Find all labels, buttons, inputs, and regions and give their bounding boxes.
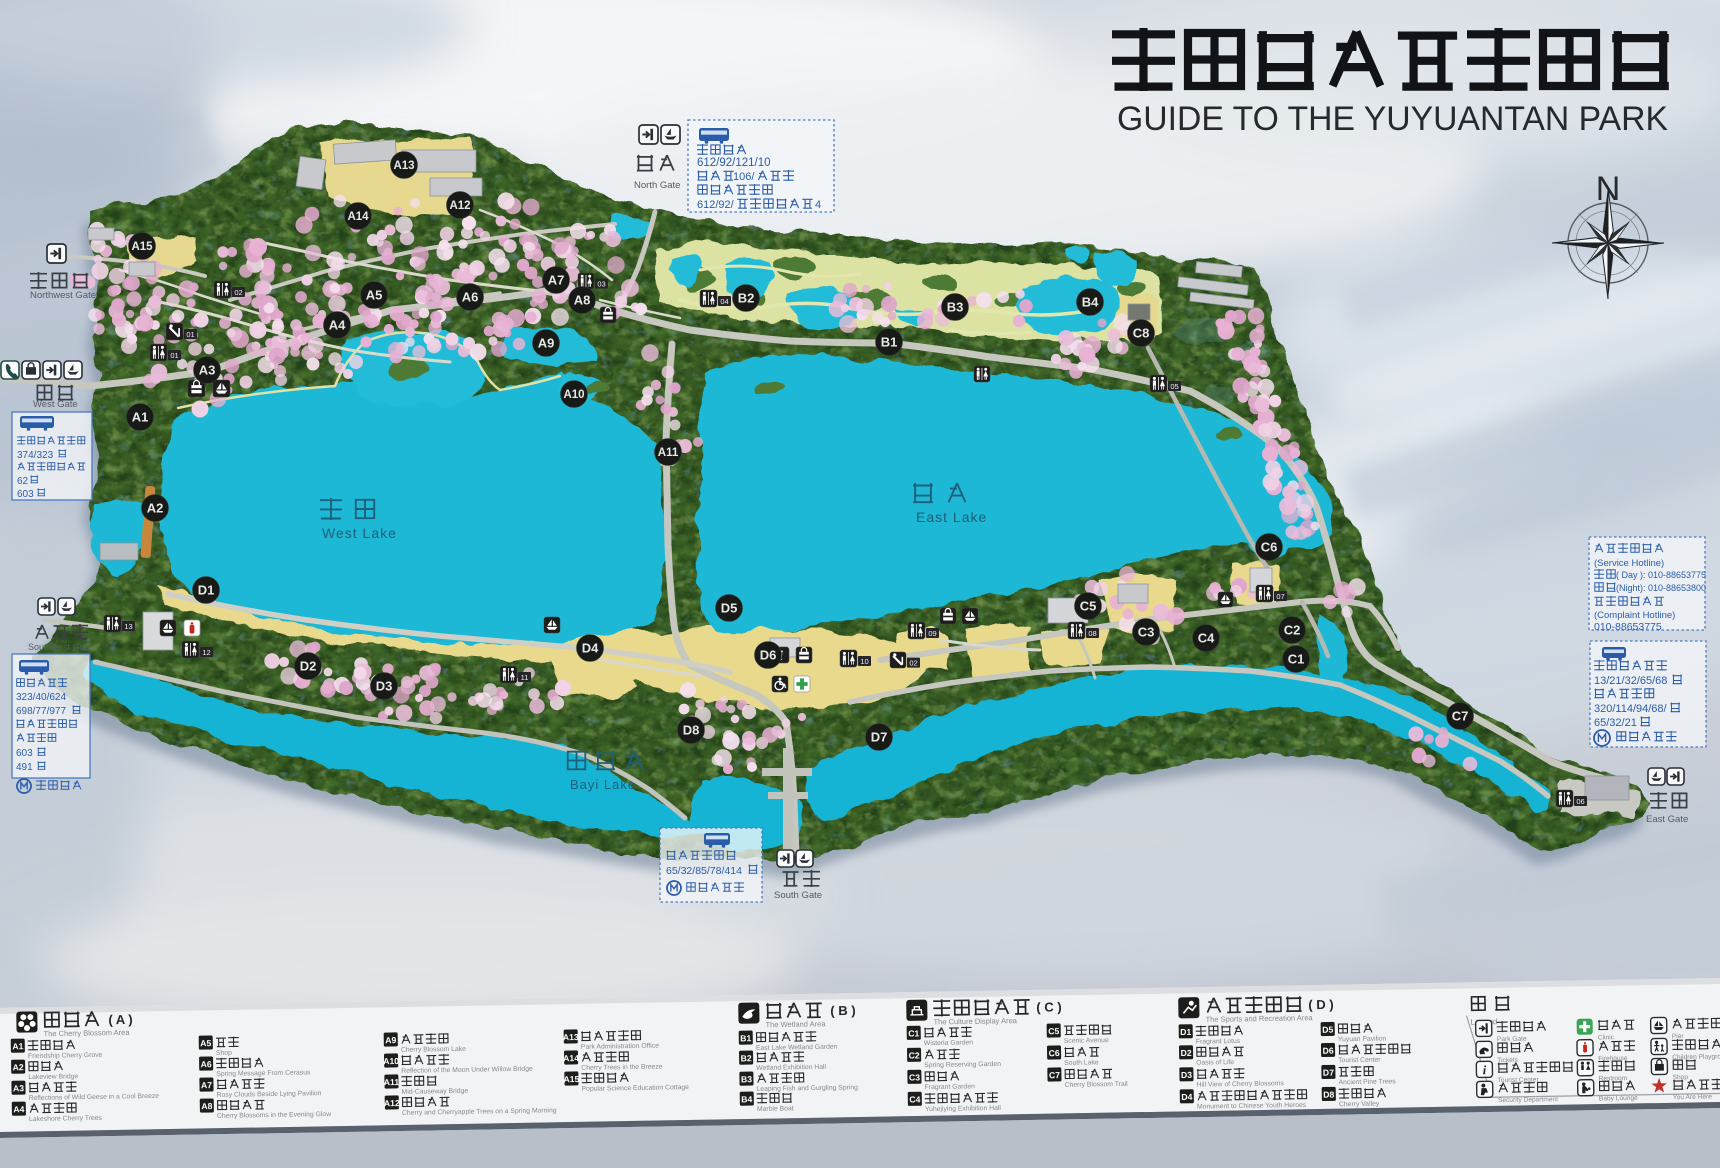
svg-text:491: 491 — [16, 762, 33, 773]
svg-text:Wetland Exhibition Hall: Wetland Exhibition Hall — [756, 1064, 826, 1072]
svg-text:( A ): ( A ) — [108, 1012, 133, 1027]
svg-text:603: 603 — [16, 748, 33, 759]
svg-text:The Culture Display Area: The Culture Display Area — [933, 1016, 1017, 1026]
svg-text:01: 01 — [170, 351, 178, 360]
svg-text:08: 08 — [1088, 629, 1096, 638]
svg-text:The Cherry Blossom Area: The Cherry Blossom Area — [44, 1028, 131, 1038]
svg-text:A13: A13 — [393, 160, 414, 172]
svg-text:65/32/85/78/414: 65/32/85/78/414 — [666, 865, 742, 877]
svg-text:Park Gate: Park Gate — [1497, 1036, 1527, 1043]
svg-text:A12: A12 — [384, 1098, 400, 1108]
svg-text:07: 07 — [1276, 592, 1284, 601]
svg-text:A1: A1 — [12, 1041, 23, 1051]
svg-text:B1: B1 — [740, 1033, 751, 1043]
svg-text:West Lake: West Lake — [322, 525, 397, 541]
svg-text:A15: A15 — [563, 1074, 579, 1084]
svg-text:B4: B4 — [1082, 295, 1099, 310]
svg-text:D5: D5 — [1322, 1025, 1333, 1035]
svg-text:A3: A3 — [199, 363, 216, 378]
svg-text:A6: A6 — [462, 290, 479, 305]
svg-text:Southwest Gate: Southwest Gate — [28, 642, 92, 652]
svg-text:603: 603 — [17, 489, 34, 500]
svg-text:D4: D4 — [582, 641, 599, 656]
svg-text:C2: C2 — [908, 1050, 919, 1060]
svg-text:D7: D7 — [871, 730, 888, 745]
svg-text:Marble Boat: Marble Boat — [757, 1105, 794, 1113]
svg-text:Pier: Pier — [1672, 1033, 1685, 1040]
svg-text:The Wetland Area: The Wetland Area — [765, 1019, 826, 1029]
svg-text:Bayi Lake: Bayi Lake — [570, 777, 636, 792]
svg-text:Friendship Cherry Grove: Friendship Cherry Grove — [28, 1052, 103, 1060]
svg-text:4: 4 — [815, 199, 821, 211]
svg-text:Baby Lounge: Baby Lounge — [1599, 1095, 1638, 1103]
svg-text:Park Administration Office: Park Administration Office — [581, 1043, 659, 1051]
svg-text:Lakeview Bridge: Lakeview Bridge — [28, 1073, 78, 1081]
svg-text:Cherry Trees in the Breeze: Cherry Trees in the Breeze — [581, 1064, 663, 1072]
svg-text:03: 03 — [597, 280, 605, 289]
svg-text:06: 06 — [1576, 797, 1584, 806]
svg-text:C3: C3 — [909, 1072, 920, 1082]
svg-text:Mid-Causeway Bridge: Mid-Causeway Bridge — [402, 1088, 469, 1096]
svg-text:D1: D1 — [1180, 1027, 1191, 1037]
svg-text:323/40/624: 323/40/624 — [16, 692, 66, 703]
svg-text:11: 11 — [521, 673, 529, 682]
svg-text:C7: C7 — [1452, 709, 1469, 724]
svg-text:02: 02 — [234, 288, 242, 297]
svg-text:Fragrant Garden: Fragrant Garden — [925, 1083, 976, 1091]
svg-text:A8: A8 — [574, 293, 591, 308]
svg-text:(Complaint Hotline): (Complaint Hotline) — [1594, 610, 1675, 621]
svg-text:D5: D5 — [721, 601, 738, 616]
svg-text:A9: A9 — [385, 1035, 396, 1045]
svg-text:A4: A4 — [13, 1104, 24, 1114]
svg-text:A7: A7 — [548, 273, 565, 288]
svg-text:106/: 106/ — [733, 171, 755, 183]
svg-text:Cherry Blossom Lake: Cherry Blossom Lake — [401, 1046, 466, 1054]
svg-text:A2: A2 — [13, 1062, 24, 1072]
svg-text:C6: C6 — [1261, 540, 1278, 555]
svg-text:( C ): ( C ) — [1036, 999, 1062, 1014]
svg-text:010-88653775: 010-88653775 — [1594, 621, 1662, 633]
svg-text:C5: C5 — [1048, 1026, 1059, 1036]
svg-text:Oasis of Life: Oasis of Life — [1196, 1059, 1234, 1067]
svg-text:A1: A1 — [132, 410, 149, 425]
svg-text:374/323: 374/323 — [17, 450, 54, 461]
svg-text:Northwest Gate: Northwest Gate — [30, 290, 96, 301]
svg-text:09: 09 — [928, 629, 936, 638]
svg-text:B2: B2 — [738, 291, 755, 306]
svg-text:A14: A14 — [563, 1053, 579, 1063]
svg-text:A14: A14 — [347, 211, 369, 223]
svg-text:A11: A11 — [658, 447, 679, 459]
svg-text:C2: C2 — [1284, 623, 1301, 638]
svg-text:A9: A9 — [538, 336, 555, 351]
svg-text:Tourist Center: Tourist Center — [1338, 1057, 1381, 1065]
svg-text:Hill View of Cherry Blossoms: Hill View of Cherry Blossoms — [1197, 1080, 1285, 1088]
svg-text:Wisteria Garden: Wisteria Garden — [924, 1039, 973, 1047]
svg-text:South Lake: South Lake — [1064, 1059, 1099, 1067]
svg-text:A8: A8 — [201, 1101, 212, 1111]
svg-text:C6: C6 — [1048, 1048, 1059, 1058]
svg-text:01: 01 — [186, 330, 194, 339]
svg-text:Yuyuan Pavilion: Yuyuan Pavilion — [1338, 1036, 1387, 1044]
svg-text:(Service Hotline): (Service Hotline) — [1594, 558, 1664, 569]
svg-text:A4: A4 — [329, 318, 346, 333]
svg-text:D8: D8 — [683, 723, 700, 738]
svg-text:A13: A13 — [563, 1032, 579, 1042]
svg-text:Shop: Shop — [216, 1050, 232, 1057]
svg-text:10: 10 — [860, 657, 868, 666]
svg-text:A10: A10 — [563, 389, 584, 401]
svg-text:B4: B4 — [741, 1094, 752, 1104]
svg-text:A10: A10 — [383, 1056, 399, 1066]
svg-text:Shop: Shop — [1673, 1074, 1689, 1081]
svg-text:(Night): 010-88653800: (Night): 010-88653800 — [1616, 583, 1706, 593]
svg-text:Yuhejiying Exhibition Hall: Yuhejiying Exhibition Hall — [925, 1105, 1002, 1113]
svg-text:A2: A2 — [147, 501, 164, 516]
svg-text:612/92/: 612/92/ — [697, 199, 735, 211]
svg-text:C4: C4 — [1198, 631, 1215, 646]
svg-text:A15: A15 — [131, 241, 153, 253]
svg-text:13/21/32/65/68: 13/21/32/65/68 — [1594, 675, 1667, 687]
svg-text:698/77/977: 698/77/977 — [16, 706, 66, 717]
svg-text:C8: C8 — [1133, 326, 1150, 341]
svg-text:East Lake Wetland Garden: East Lake Wetland Garden — [756, 1044, 838, 1052]
svg-text:A6: A6 — [201, 1059, 212, 1069]
svg-text:D2: D2 — [1180, 1048, 1191, 1058]
svg-text:C4: C4 — [909, 1094, 920, 1104]
svg-text:A7: A7 — [201, 1080, 212, 1090]
svg-text:65/32/21: 65/32/21 — [1594, 717, 1637, 729]
svg-text:D6: D6 — [1322, 1046, 1333, 1056]
svg-text:B2: B2 — [740, 1053, 751, 1063]
svg-text:West Gate: West Gate — [33, 399, 78, 410]
svg-text:D4: D4 — [1181, 1092, 1192, 1102]
svg-text:D3: D3 — [376, 679, 393, 694]
svg-text:B3: B3 — [741, 1074, 752, 1084]
svg-text:( Day ): 010-88653775: ( Day ): 010-88653775 — [1616, 570, 1706, 580]
svg-text:Cherry Blossom Trail: Cherry Blossom Trail — [1065, 1081, 1129, 1089]
svg-text:D8: D8 — [1323, 1090, 1334, 1100]
svg-text:C5: C5 — [1080, 599, 1097, 614]
svg-text:South Gate: South Gate — [774, 890, 822, 901]
svg-text:Fragrant Lotus: Fragrant Lotus — [1196, 1038, 1241, 1046]
svg-text:B1: B1 — [881, 335, 898, 350]
svg-text:A5: A5 — [200, 1038, 211, 1048]
svg-text:D3: D3 — [1181, 1070, 1192, 1080]
svg-text:13: 13 — [124, 622, 132, 631]
svg-text:A12: A12 — [449, 200, 470, 212]
svg-text:B3: B3 — [947, 300, 964, 315]
svg-text:North Gate: North Gate — [634, 180, 680, 191]
svg-text:( D ): ( D ) — [1308, 997, 1334, 1012]
svg-text:02: 02 — [909, 659, 917, 668]
svg-text:Clinic: Clinic — [1598, 1034, 1615, 1041]
svg-text:Lakeshore Cherry Trees: Lakeshore Cherry Trees — [29, 1115, 103, 1123]
svg-text:East Lake: East Lake — [916, 509, 987, 525]
svg-text:C1: C1 — [908, 1028, 919, 1038]
svg-text:A11: A11 — [384, 1077, 400, 1087]
svg-text:D7: D7 — [1323, 1068, 1334, 1078]
svg-text:C1: C1 — [1288, 652, 1305, 667]
svg-text:Cherry Valley: Cherry Valley — [1339, 1101, 1380, 1109]
svg-text:12: 12 — [202, 648, 210, 657]
svg-text:04: 04 — [720, 297, 728, 306]
svg-text:GUIDE TO THE YUYUANTAN PARK: GUIDE TO THE YUYUANTAN PARK — [1117, 100, 1668, 138]
svg-text:05: 05 — [1170, 382, 1178, 391]
svg-text:Spring Reserving Garden: Spring Reserving Garden — [924, 1061, 1001, 1069]
svg-text:D1: D1 — [198, 583, 215, 598]
svg-text:A5: A5 — [366, 288, 383, 303]
svg-text:C3: C3 — [1138, 625, 1155, 640]
svg-text:i: i — [1483, 1063, 1487, 1077]
svg-text:D2: D2 — [300, 659, 317, 674]
svg-text:62: 62 — [17, 476, 29, 487]
svg-text:East Gate: East Gate — [1646, 814, 1688, 825]
svg-text:The Sports and Recreation Area: The Sports and Recreation Area — [1205, 1013, 1313, 1024]
svg-text:D6: D6 — [760, 648, 777, 663]
svg-text:320/114/94/68/: 320/114/94/68/ — [1594, 703, 1668, 715]
svg-text:Scenic Avenue: Scenic Avenue — [1064, 1037, 1109, 1045]
svg-text:612/92/121/10: 612/92/121/10 — [697, 157, 771, 169]
svg-text:Ancient Pine Trees: Ancient Pine Trees — [1339, 1078, 1397, 1086]
svg-text:A3: A3 — [13, 1083, 24, 1093]
svg-text:Security Department: Security Department — [1498, 1096, 1558, 1104]
svg-text:You Are Here: You Are Here — [1673, 1094, 1712, 1102]
svg-text:( B ): ( B ) — [830, 1003, 856, 1018]
svg-text:C7: C7 — [1049, 1070, 1060, 1080]
